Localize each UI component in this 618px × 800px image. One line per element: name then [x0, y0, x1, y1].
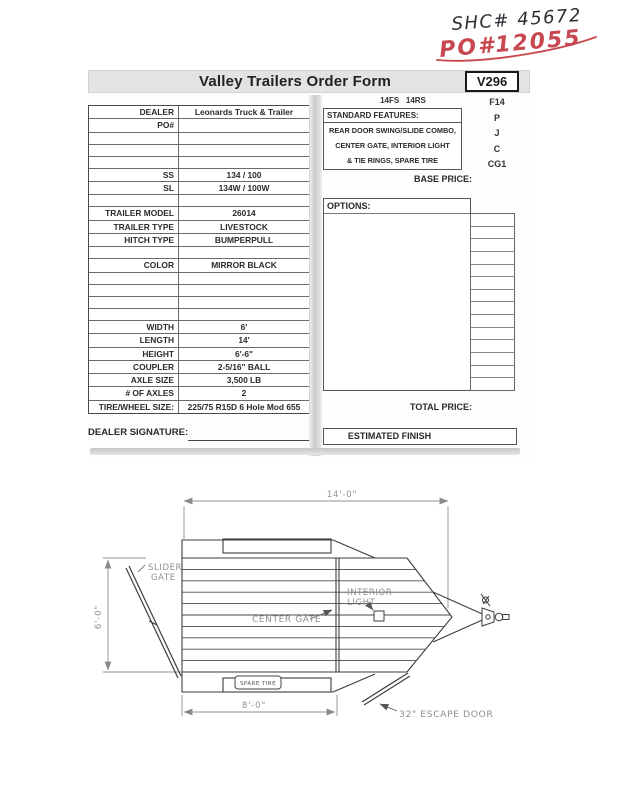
spec-value: 3,500 LB [179, 374, 309, 386]
spec-label: HITCH TYPE [89, 234, 179, 246]
spec-value [179, 247, 309, 258]
spec-value: 2-5/16" BALL [179, 361, 309, 373]
option-price-column [470, 213, 515, 391]
spec-label: AXLE SIZE [89, 374, 179, 386]
spec-table-row: HEIGHT 6'-6" [89, 348, 309, 361]
option-price-cell [471, 277, 514, 290]
spec-label [89, 297, 179, 308]
spare-tire-label: SPARE TIRE [240, 681, 276, 687]
spec-table-row [89, 285, 309, 297]
form-code-box: V296 [465, 71, 519, 92]
estimated-finish-label: ESTIMATED FINISH [323, 428, 456, 445]
spec-table-row [89, 195, 309, 207]
option-price-cell [471, 315, 514, 328]
feature-code: F14 [477, 97, 517, 107]
options-heading: OPTIONS: [324, 199, 470, 214]
interior-light-label: INTERIOR [347, 588, 392, 598]
spec-value [179, 195, 309, 206]
spec-value [179, 285, 309, 296]
hitch-tongue [433, 592, 489, 642]
option-price-cell [471, 227, 514, 240]
option-price-cell [471, 214, 514, 227]
feature-code: C [477, 144, 517, 154]
interior-light-marker [374, 611, 384, 621]
spec-table-row: LENGTH 14' [89, 334, 309, 347]
spec-table-row [89, 273, 309, 285]
feature-code: CG1 [477, 159, 517, 169]
spec-table-row: COLOR MIRROR BLACK [89, 259, 309, 272]
spec-table-row: HITCH TYPE BUMPERPULL [89, 234, 309, 247]
spec-value: 225/75 R15D 6 Hole Mod 655 [179, 401, 309, 413]
spec-value: 134W / 100W [179, 182, 309, 194]
standard-features-line: REAR DOOR SWING/SLIDE COMBO, [324, 123, 461, 138]
spec-table-row: DEALER Leonards Truck & Trailer [89, 106, 309, 119]
spec-label: TIRE/WHEEL SIZE: [89, 401, 179, 413]
spec-label [89, 247, 179, 258]
center-gate-label: CENTER GATE [252, 615, 321, 625]
dim-box-length: 8'-0" [242, 701, 266, 711]
option-price-cell [471, 366, 514, 379]
spec-value: 6' [179, 321, 309, 333]
standard-features-line: & TIE RINGS, SPARE TIRE [324, 153, 461, 168]
options-box: OPTIONS: [323, 198, 471, 391]
feature-code: P [477, 113, 517, 123]
spec-table-row: TRAILER TYPE LIVESTOCK [89, 221, 309, 234]
spec-value: 2 [179, 387, 309, 399]
option-price-cell [471, 290, 514, 303]
spec-label: HEIGHT [89, 348, 179, 360]
option-price-cell [471, 265, 514, 278]
option-price-cell [471, 239, 514, 252]
spec-label [89, 273, 179, 284]
spec-table-row [89, 297, 309, 309]
spec-table-row: # OF AXLES 2 [89, 387, 309, 400]
spec-table-row: AXLE SIZE 3,500 LB [89, 374, 309, 387]
spec-table-row: SS 134 / 100 [89, 169, 309, 182]
option-price-cell [471, 340, 514, 353]
spec-label [89, 309, 179, 320]
spec-label: PO# [89, 119, 179, 131]
spec-table-row: SL 134W / 100W [89, 182, 309, 195]
feature-code: J [477, 128, 517, 138]
spec-table: DEALER Leonards Truck & Trailer PO# [88, 105, 310, 414]
spec-label: TRAILER TYPE [89, 221, 179, 233]
spec-value: LIVESTOCK [179, 221, 309, 233]
slider-gate-label: GATE [151, 573, 176, 583]
form-title: Valley Trailers Order Form [125, 70, 465, 93]
spec-table-row: TRAILER MODEL 26014 [89, 207, 309, 220]
spec-value: BUMPERPULL [179, 234, 309, 246]
spec-value [179, 273, 309, 284]
option-price-cell [471, 353, 514, 366]
spec-label [89, 133, 179, 144]
spec-label: SL [89, 182, 179, 194]
spec-label: TRAILER MODEL [89, 207, 179, 219]
total-price-label: TOTAL PRICE: [348, 402, 472, 412]
spec-label: # OF AXLES [89, 387, 179, 399]
model-codes: 14FS 14RS [343, 96, 463, 105]
dealer-signature-label: DEALER SIGNATURE: [88, 427, 188, 438]
spec-label [89, 157, 179, 168]
spec-value: 26014 [179, 207, 309, 219]
spec-label: COUPLER [89, 361, 179, 373]
spec-table-row: COUPLER 2-5/16" BALL [89, 361, 309, 374]
spec-value [179, 119, 309, 131]
spec-table-row [89, 157, 309, 169]
spec-value: 134 / 100 [179, 169, 309, 181]
option-price-cell [471, 302, 514, 315]
spec-label [89, 195, 179, 206]
scan-fold-shadow [309, 95, 322, 456]
spec-value: Leonards Truck & Trailer [179, 106, 309, 118]
dealer-signature-line [188, 440, 310, 441]
handwritten-annotations: SHC# 45672 PO#12055 [0, 0, 618, 70]
interior-light-label: LIGHT [347, 598, 376, 608]
spec-value: 14' [179, 334, 309, 346]
spec-value [179, 145, 309, 156]
option-price-cell [471, 328, 514, 341]
spec-table-row: WIDTH 6' [89, 321, 309, 334]
dim-overall-length: 14'-0" [327, 490, 357, 500]
standard-features-box: STANDARD FEATURES: REAR DOOR SWING/SLIDE… [323, 108, 462, 170]
spec-value: 6'-6" [179, 348, 309, 360]
spec-table-row [89, 247, 309, 259]
spec-label: DEALER [89, 106, 179, 118]
spec-value [179, 297, 309, 308]
option-price-cell [471, 378, 514, 390]
option-price-cell [471, 252, 514, 265]
spec-label: LENGTH [89, 334, 179, 346]
spec-table-row: PO# [89, 119, 309, 132]
slider-gate-label: SLIDER [148, 563, 182, 573]
spec-table-row [89, 133, 309, 145]
base-price-label: BASE PRICE: [348, 174, 472, 184]
spec-label: SS [89, 169, 179, 181]
spec-table-row [89, 309, 309, 321]
order-form: Valley Trailers Order Form V296 14FS 14R… [88, 70, 530, 462]
spec-label: WIDTH [89, 321, 179, 333]
scanned-order-form-page: SHC# 45672 PO#12055 Valley Trailers Orde… [0, 0, 618, 800]
escape-door-label: 32" ESCAPE DOOR [399, 709, 493, 720]
scan-bottom-shadow [90, 448, 520, 455]
spec-label [89, 285, 179, 296]
spec-label [89, 145, 179, 156]
trailer-plan-drawing: 14'-0" 6'-0" 8'-0" [0, 480, 618, 800]
form-title-bar: Valley Trailers Order Form V296 [88, 70, 530, 93]
spec-value [179, 157, 309, 168]
dim-width: 6'-0" [94, 605, 104, 629]
spec-label: COLOR [89, 259, 179, 271]
spec-value [179, 133, 309, 144]
spec-value [179, 309, 309, 320]
standard-features-line: CENTER GATE, INTERIOR LIGHT [324, 138, 461, 153]
estimated-finish-value-cell [455, 428, 517, 445]
standard-features-heading: STANDARD FEATURES: [324, 109, 461, 123]
escape-door-line [362, 673, 410, 705]
spec-table-row [89, 145, 309, 157]
spec-table-row: TIRE/WHEEL SIZE: 225/75 R15D 6 Hole Mod … [89, 401, 309, 413]
spec-value: MIRROR BLACK [179, 259, 309, 271]
hitch-coupler-icon [481, 594, 509, 626]
